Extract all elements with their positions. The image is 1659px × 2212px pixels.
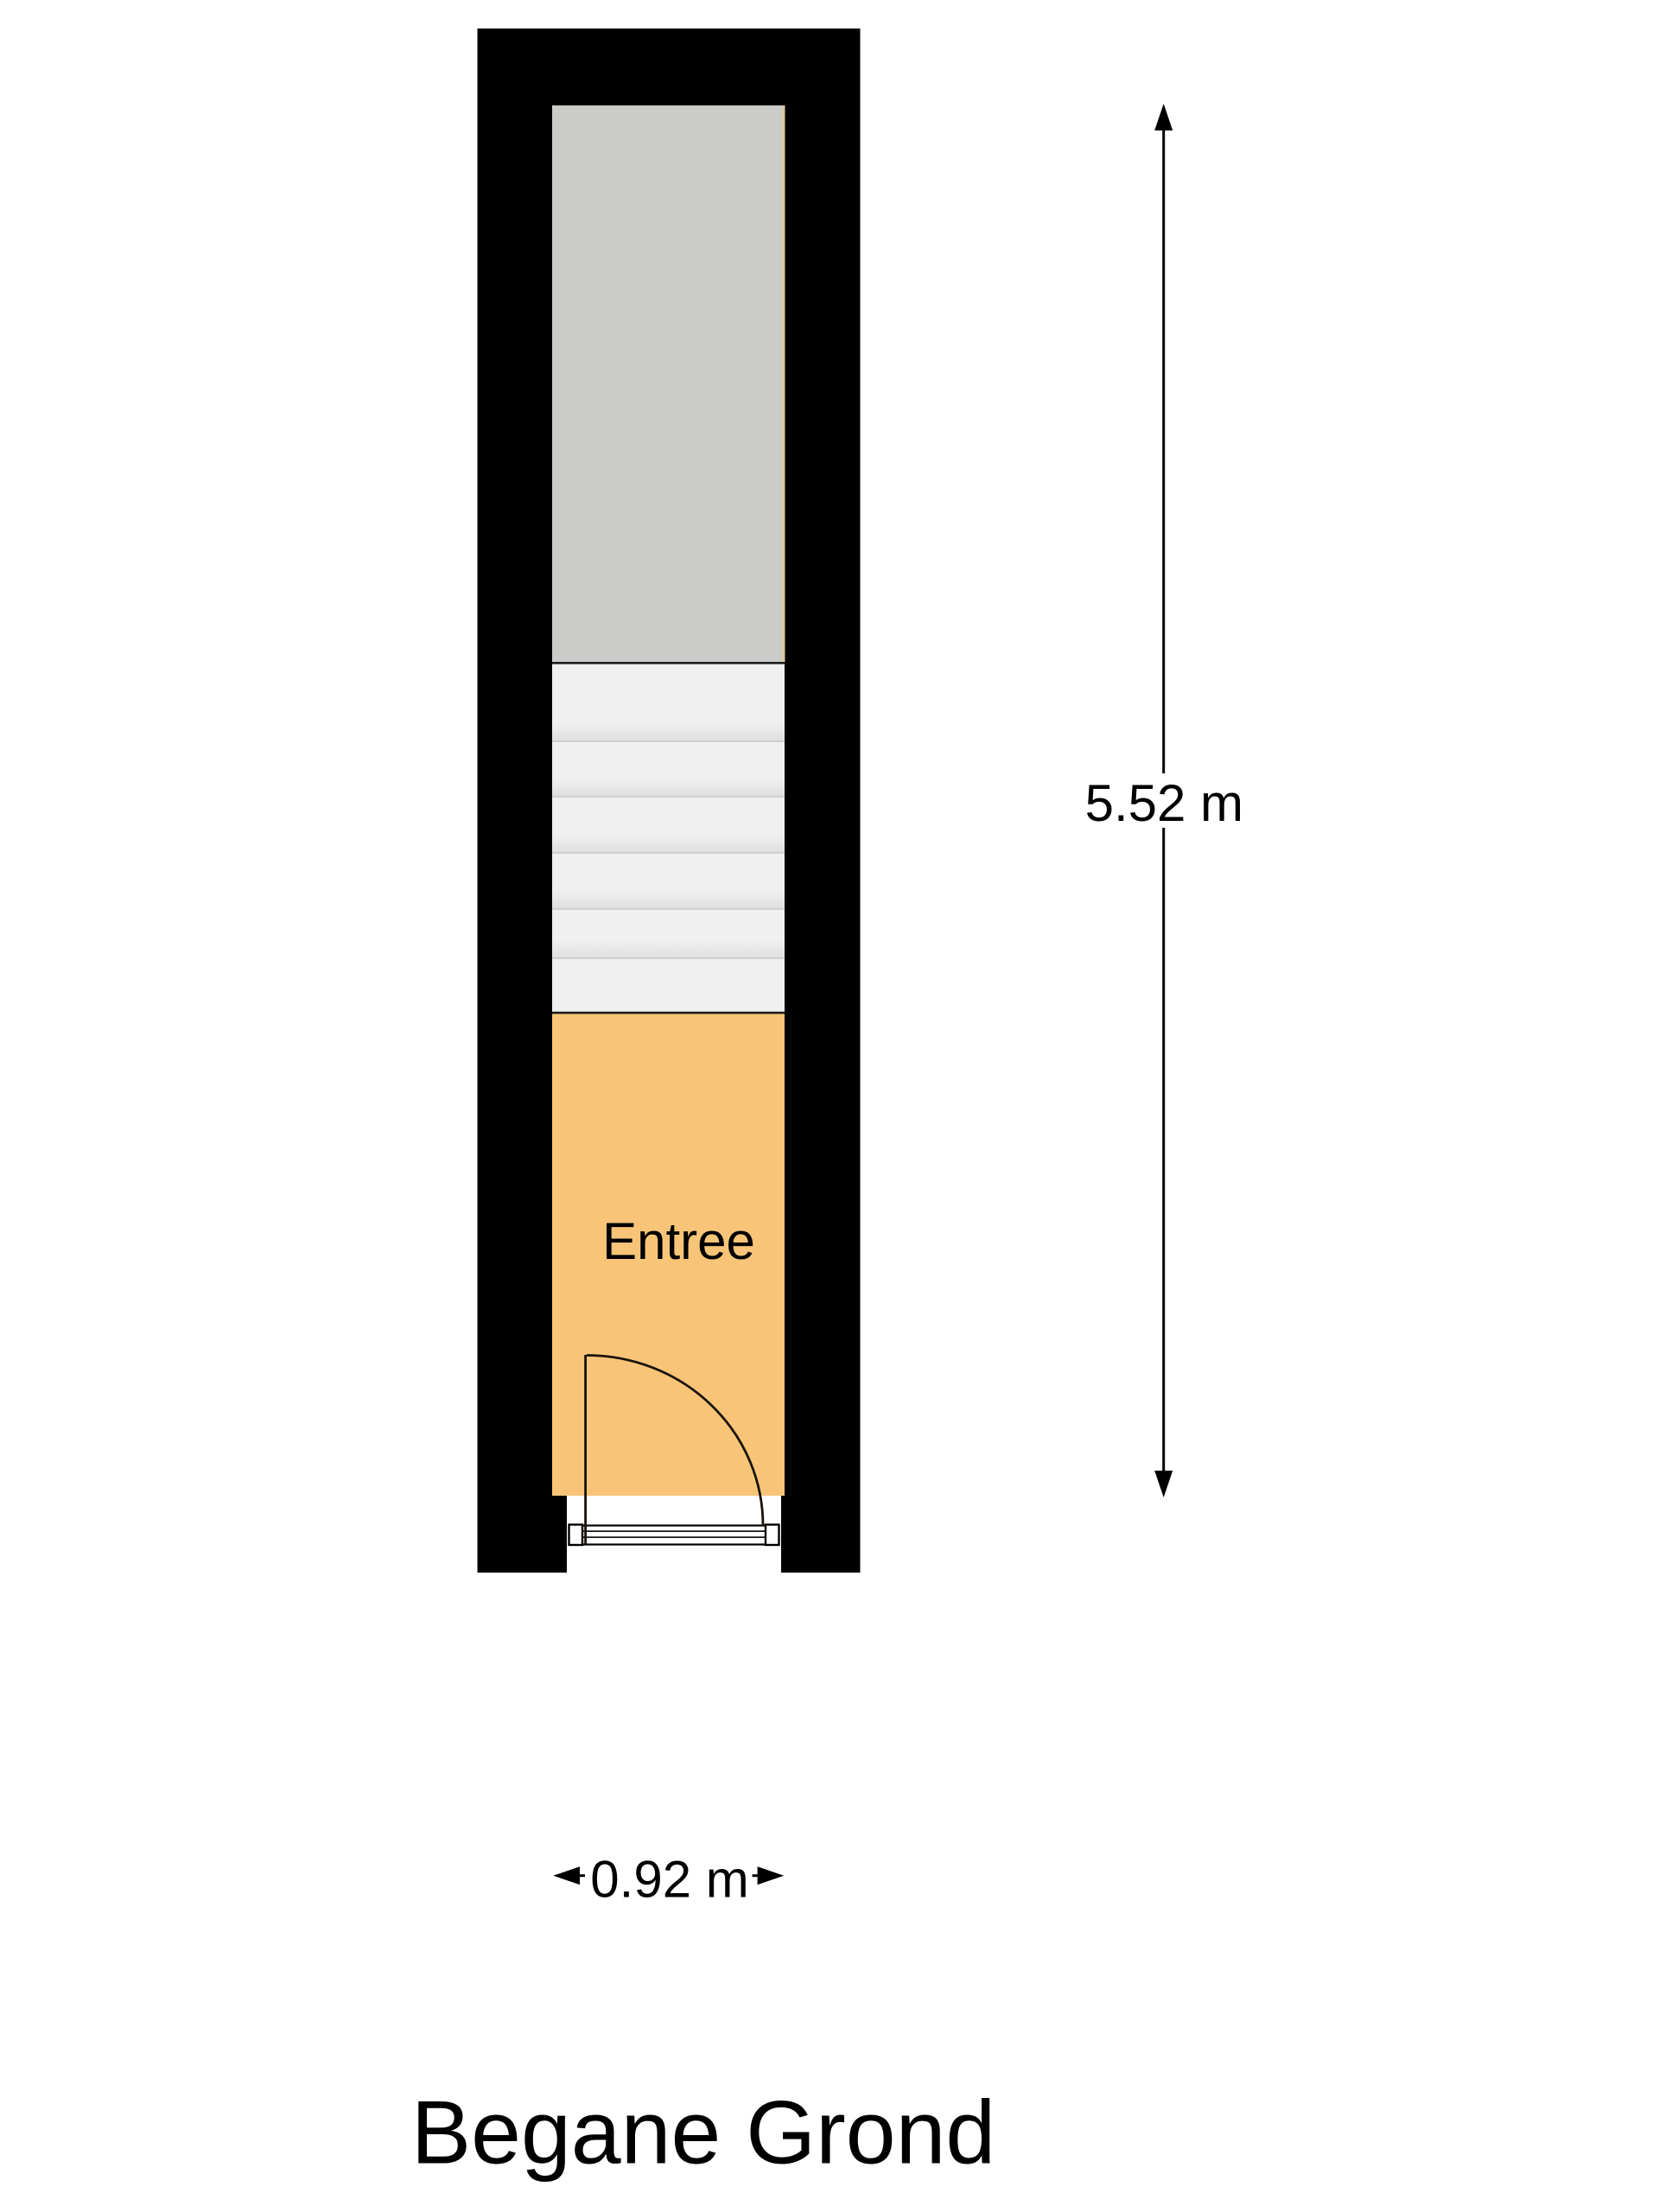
svg-text:0.92 m: 0.92 m [590,1851,748,1909]
svg-text:5.52 m: 5.52 m [1085,774,1243,832]
svg-text:Entree: Entree [602,1212,755,1270]
svg-text:Begane Grond: Begane Grond [411,2083,996,2183]
